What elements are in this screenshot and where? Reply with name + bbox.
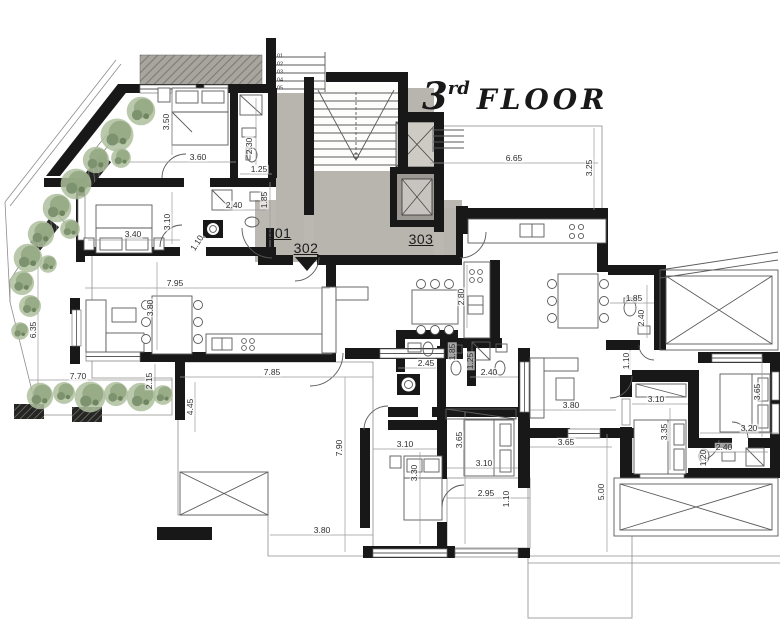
dimension-label: 4.45 bbox=[186, 398, 195, 417]
dimension-label: 1.85 bbox=[625, 294, 644, 303]
bathroom-fixtures bbox=[203, 190, 262, 238]
dimension-label: 3.80 bbox=[313, 526, 332, 535]
coffee-table-icon bbox=[112, 308, 136, 322]
title-word: FLOOR bbox=[477, 83, 609, 116]
washing-machine-icon bbox=[397, 374, 420, 395]
title-number: 3 bbox=[422, 74, 448, 118]
dimension-label: 3.20 bbox=[740, 424, 759, 433]
dimension-label: 2.40 bbox=[225, 201, 244, 210]
dimension-label: 3.40 bbox=[124, 230, 143, 239]
stair-tread-number: 02 bbox=[277, 62, 283, 68]
stair-tread-number: 03 bbox=[277, 70, 283, 76]
dimension-label: 2.45 bbox=[417, 359, 436, 368]
floor-plan-canvas bbox=[0, 0, 780, 640]
dimension-label: 3.65 bbox=[557, 438, 576, 447]
dimension-label: 3.10 bbox=[647, 395, 666, 404]
dimension-label: 3.65 bbox=[455, 431, 464, 450]
pergola-bottom-right bbox=[614, 478, 778, 536]
dimension-label: 2.95 bbox=[477, 489, 496, 498]
stair-tread-number: 05 bbox=[277, 86, 283, 92]
dimension-label: 7.90 bbox=[335, 439, 344, 458]
dimension-label: 1.25 bbox=[466, 352, 475, 371]
dimension-label: 5.00 bbox=[597, 483, 606, 502]
dimension-label: 2.15 bbox=[145, 372, 154, 391]
dimension-label: 1.85 bbox=[448, 343, 457, 362]
dimension-label: 7.70 bbox=[69, 372, 88, 381]
dimension-label: 3.10 bbox=[163, 213, 172, 232]
dimension-label: 3.60 bbox=[189, 153, 208, 162]
dimension-label: 2.80 bbox=[457, 288, 466, 307]
terrace-bottom-center bbox=[178, 362, 373, 556]
dimension-label: 3.65 bbox=[753, 383, 762, 402]
kitchen-counter-icon bbox=[206, 334, 332, 354]
dimension-label: 7.85 bbox=[263, 368, 282, 377]
page-title: 3rdFLOOR bbox=[422, 74, 608, 118]
dimension-label: 3.25 bbox=[585, 159, 594, 178]
dimension-label: 3.80 bbox=[146, 299, 155, 318]
dimension-label: 3.10 bbox=[396, 440, 415, 449]
dimension-label: 3.30 bbox=[410, 464, 419, 483]
dimension-label: 1.85 bbox=[260, 191, 269, 210]
title-ordinal: rd bbox=[448, 78, 470, 99]
dimension-label: 3.80 bbox=[562, 401, 581, 410]
terrace-top-right bbox=[428, 126, 602, 212]
dimension-label: 6.65 bbox=[505, 154, 524, 163]
dimension-label: 2.40 bbox=[480, 368, 499, 377]
ramp bbox=[660, 252, 778, 350]
dimension-label: 2.40 bbox=[715, 443, 734, 452]
stair-tread-number: 01 bbox=[277, 54, 283, 60]
apartment-label-302: 302 bbox=[294, 240, 319, 256]
floor-plan-page: 3rdFLOOR 301 302 303 01 02 03 04 05 3.50… bbox=[0, 0, 780, 640]
dimension-label: 1.25 bbox=[250, 165, 269, 174]
dining-table-icon bbox=[412, 280, 458, 335]
apartment-label-301: 301 bbox=[267, 225, 292, 241]
dimension-label: 1.20 bbox=[699, 449, 708, 468]
dining-table-icon bbox=[548, 274, 609, 328]
stair-tread-number: 04 bbox=[277, 78, 283, 84]
dimension-label: 1.10 bbox=[502, 490, 511, 509]
sofa-icon bbox=[322, 287, 368, 353]
dimension-label: 3.10 bbox=[475, 459, 494, 468]
apartment-label-303: 303 bbox=[409, 231, 434, 247]
kitchen-counter-icon bbox=[468, 219, 606, 243]
skylight-left bbox=[180, 472, 268, 515]
dimension-label: 2.30 bbox=[245, 137, 254, 156]
dimension-label: 3.35 bbox=[660, 423, 669, 442]
kitchen-counter-icon bbox=[464, 262, 490, 338]
dimension-label: 6.35 bbox=[29, 321, 38, 340]
balcony-strip bbox=[140, 55, 262, 85]
dimension-label: 1.10 bbox=[622, 352, 631, 371]
dimension-label: 3.50 bbox=[162, 113, 171, 132]
dimension-label: 7.95 bbox=[166, 279, 185, 288]
dimension-label: 2.40 bbox=[637, 309, 646, 328]
